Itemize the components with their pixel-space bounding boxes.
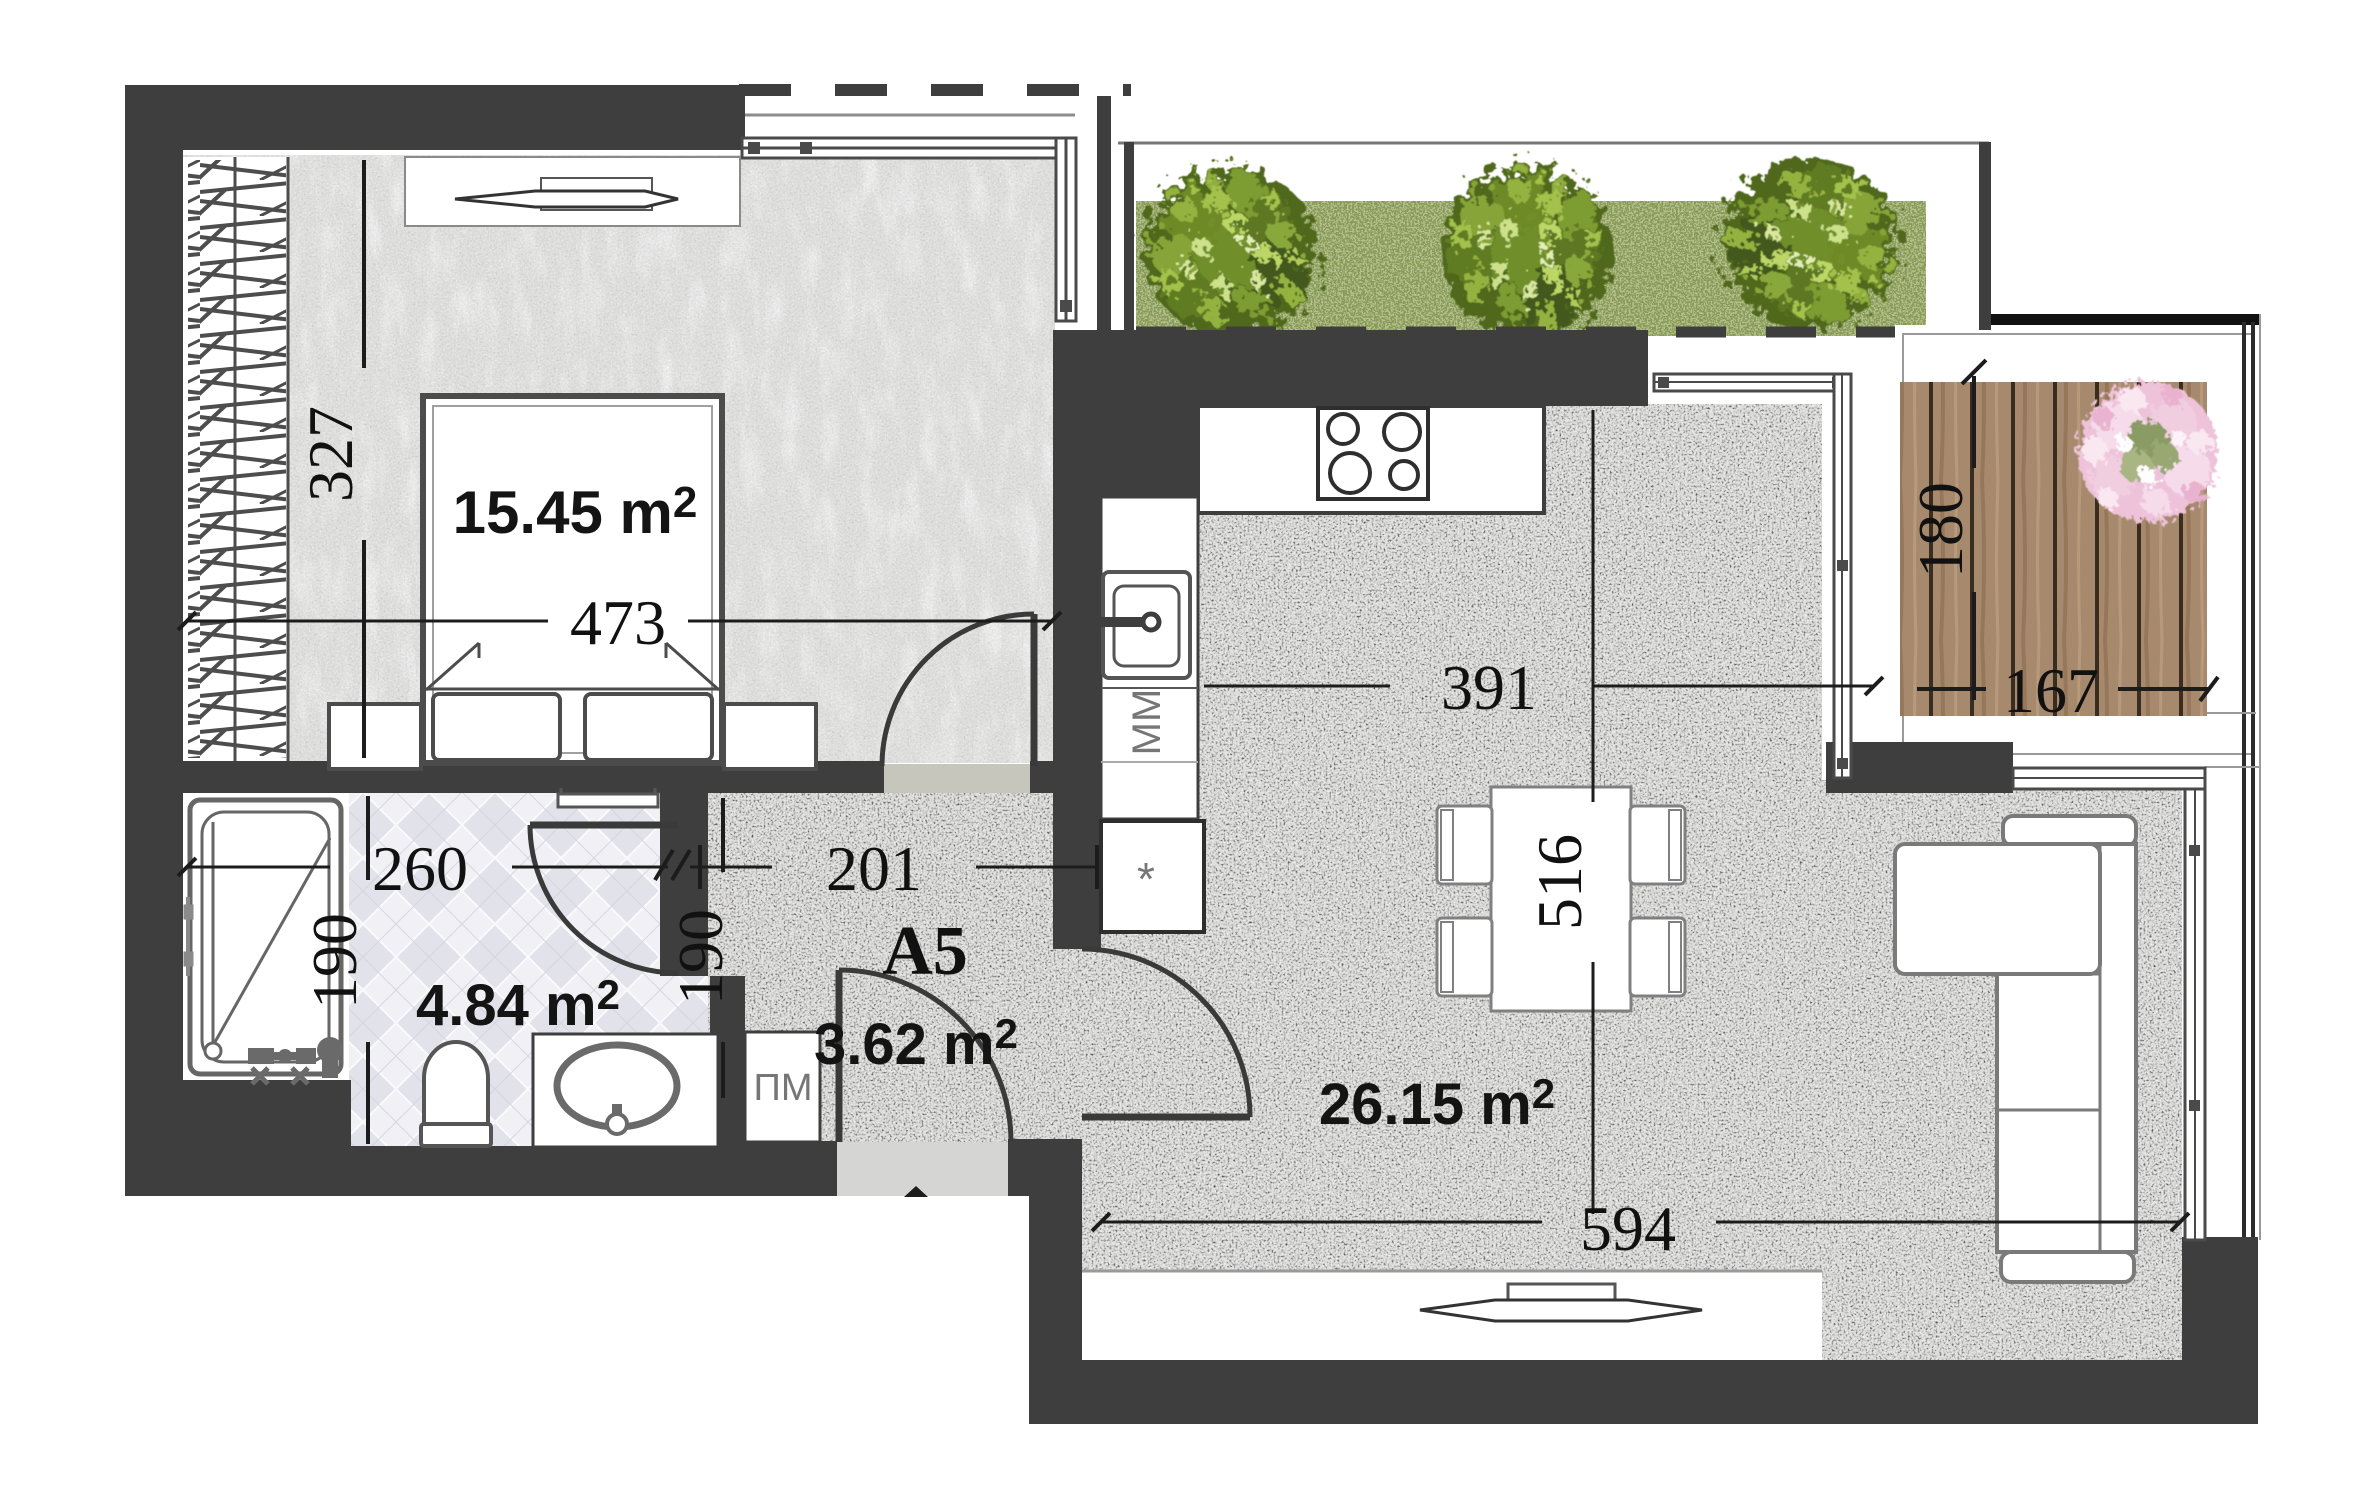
svg-text:А5: А5 <box>882 913 968 990</box>
svg-text:ПМ: ПМ <box>754 1067 813 1109</box>
svg-text:516: 516 <box>1524 834 1595 930</box>
svg-text:201: 201 <box>826 833 922 904</box>
svg-text:594: 594 <box>1580 1193 1676 1264</box>
svg-text:26.15 m2: 26.15 m2 <box>1319 1070 1555 1137</box>
svg-text:167: 167 <box>2003 655 2099 726</box>
svg-text:190: 190 <box>665 909 736 1005</box>
svg-text:391: 391 <box>1441 652 1537 723</box>
svg-text:4.84 m2: 4.84 m2 <box>416 971 620 1038</box>
svg-text:15.45 m2: 15.45 m2 <box>453 478 698 546</box>
svg-text:*: * <box>1137 853 1155 905</box>
svg-text:3.62 m2: 3.62 m2 <box>814 1010 1018 1077</box>
svg-text:ММ: ММ <box>1125 689 1169 756</box>
svg-text:190: 190 <box>299 913 370 1009</box>
svg-text:180: 180 <box>1905 482 1976 578</box>
svg-text:473: 473 <box>570 587 666 658</box>
svg-text:327: 327 <box>295 406 366 502</box>
svg-text:260: 260 <box>372 833 468 904</box>
